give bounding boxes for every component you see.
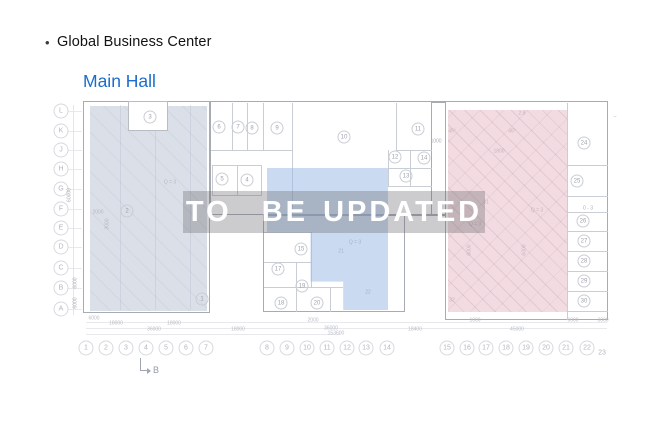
room-29: 29 bbox=[578, 275, 591, 288]
grid-leader-line bbox=[68, 150, 82, 151]
row-label-J: J bbox=[54, 143, 69, 158]
room-2: 2 bbox=[121, 205, 134, 218]
room-12: 12 bbox=[389, 151, 402, 164]
dimension-label: 153600 bbox=[328, 332, 345, 337]
row-label-H: H bbox=[54, 162, 69, 177]
wall bbox=[567, 291, 608, 292]
grid-leader-line bbox=[68, 268, 82, 269]
plan-annotation: 0 - 3 bbox=[583, 207, 593, 212]
col-label-23: 23 bbox=[598, 350, 606, 357]
room-19: 19 bbox=[296, 280, 309, 293]
col-label-7: 7 bbox=[199, 341, 214, 356]
dimension-label: 18000 bbox=[231, 328, 245, 333]
dimension-label: 45000 bbox=[510, 328, 524, 333]
dimension-label: 1000 bbox=[469, 319, 480, 324]
col-label-15: 15 bbox=[440, 341, 455, 356]
col-label-4: 4 bbox=[139, 341, 154, 356]
grid-leader-line bbox=[68, 209, 82, 210]
section-arrow-icon bbox=[147, 368, 151, 374]
wall bbox=[567, 196, 608, 197]
wall bbox=[86, 334, 340, 335]
room-4: 4 bbox=[241, 174, 254, 187]
col-label-8: 8 bbox=[260, 341, 275, 356]
grid-leader-line bbox=[68, 111, 82, 112]
grid-leader-line bbox=[68, 169, 82, 170]
room-8: 8 bbox=[246, 122, 259, 135]
plan-annotation: – bbox=[614, 115, 617, 120]
wall bbox=[396, 103, 397, 150]
room-13: 13 bbox=[400, 170, 413, 183]
dimension-label: 18000 bbox=[109, 322, 123, 327]
col-label-12: 12 bbox=[340, 341, 355, 356]
dimension-label: 18000 bbox=[167, 322, 181, 327]
section-label: B bbox=[153, 365, 159, 375]
row-label-B: B bbox=[54, 281, 69, 296]
row-label-C: C bbox=[54, 261, 69, 276]
room-11: 11 bbox=[412, 123, 425, 136]
row-label-E: E bbox=[54, 221, 69, 236]
room-9: 9 bbox=[271, 122, 284, 135]
wall bbox=[330, 287, 331, 312]
wall bbox=[567, 251, 608, 252]
col-label-3: 3 bbox=[119, 341, 134, 356]
watermark-text: TO BE UPDATED bbox=[186, 198, 482, 227]
wall bbox=[86, 322, 607, 323]
room-28: 28 bbox=[578, 255, 591, 268]
col-label-22: 22 bbox=[580, 341, 595, 356]
col-label-21: 21 bbox=[559, 341, 574, 356]
grid-leader-line bbox=[68, 131, 82, 132]
grid-leader-line bbox=[68, 228, 82, 229]
dimension-label: 18400 bbox=[408, 328, 422, 333]
grid-leader-line bbox=[68, 247, 82, 248]
col-label-2: 2 bbox=[99, 341, 114, 356]
wall bbox=[263, 103, 264, 150]
dimension-label: 6000 bbox=[88, 317, 99, 322]
dimension-label: 6000 bbox=[567, 319, 578, 324]
wall bbox=[388, 186, 432, 187]
wall bbox=[388, 168, 432, 169]
room-6: 6 bbox=[213, 121, 226, 134]
wall bbox=[211, 150, 292, 151]
room-18: 18 bbox=[275, 297, 288, 310]
col-label-11: 11 bbox=[320, 341, 335, 356]
room-25: 25 bbox=[571, 175, 584, 188]
row-label-L: L bbox=[54, 104, 69, 119]
col-label-5: 5 bbox=[159, 341, 174, 356]
room-7: 7 bbox=[232, 121, 245, 134]
room-1: 1 bbox=[196, 293, 209, 306]
plan-annotation: 6000 bbox=[74, 297, 79, 308]
room-3: 3 bbox=[144, 111, 157, 124]
dimension-label: 36000 bbox=[147, 328, 161, 333]
wall bbox=[432, 101, 445, 103]
room-17: 17 bbox=[272, 263, 285, 276]
room-15: 15 bbox=[295, 243, 308, 256]
wall bbox=[396, 150, 432, 151]
col-label-1: 1 bbox=[79, 341, 94, 356]
watermark-banner: TO BE UPDATED bbox=[183, 191, 485, 233]
grid-leader-line bbox=[68, 309, 82, 310]
room-27: 27 bbox=[578, 235, 591, 248]
room-5: 5 bbox=[216, 173, 229, 186]
col-label-9: 9 bbox=[280, 341, 295, 356]
row-label-K: K bbox=[54, 124, 69, 139]
col-label-13: 13 bbox=[359, 341, 374, 356]
col-label-19: 19 bbox=[519, 341, 534, 356]
wall bbox=[86, 328, 607, 329]
col-label-10: 10 bbox=[300, 341, 315, 356]
wall bbox=[567, 271, 608, 272]
wall bbox=[567, 165, 608, 166]
col-label-16: 16 bbox=[460, 341, 475, 356]
col-label-14: 14 bbox=[380, 341, 395, 356]
room-24: 24 bbox=[578, 137, 591, 150]
plan-annotation: 60000 bbox=[68, 188, 73, 202]
room-20: 20 bbox=[311, 297, 324, 310]
col-label-17: 17 bbox=[479, 341, 494, 356]
room-10: 10 bbox=[338, 131, 351, 144]
row-label-A: A bbox=[54, 302, 69, 317]
row-label-D: D bbox=[54, 240, 69, 255]
wall bbox=[567, 212, 608, 213]
room-14: 14 bbox=[418, 152, 431, 165]
plan-annotation: 6000 bbox=[74, 277, 79, 288]
wall bbox=[567, 231, 608, 232]
dimension-label: 2000 bbox=[307, 319, 318, 324]
wall bbox=[264, 262, 311, 263]
col-label-20: 20 bbox=[539, 341, 554, 356]
col-label-18: 18 bbox=[499, 341, 514, 356]
row-label-F: F bbox=[54, 202, 69, 217]
room-30: 30 bbox=[578, 295, 591, 308]
dimension-label: 3000 bbox=[597, 319, 608, 324]
room-26: 26 bbox=[577, 215, 590, 228]
col-label-6: 6 bbox=[179, 341, 194, 356]
plan-annotation: 1000 bbox=[430, 140, 441, 145]
wall bbox=[567, 311, 608, 312]
